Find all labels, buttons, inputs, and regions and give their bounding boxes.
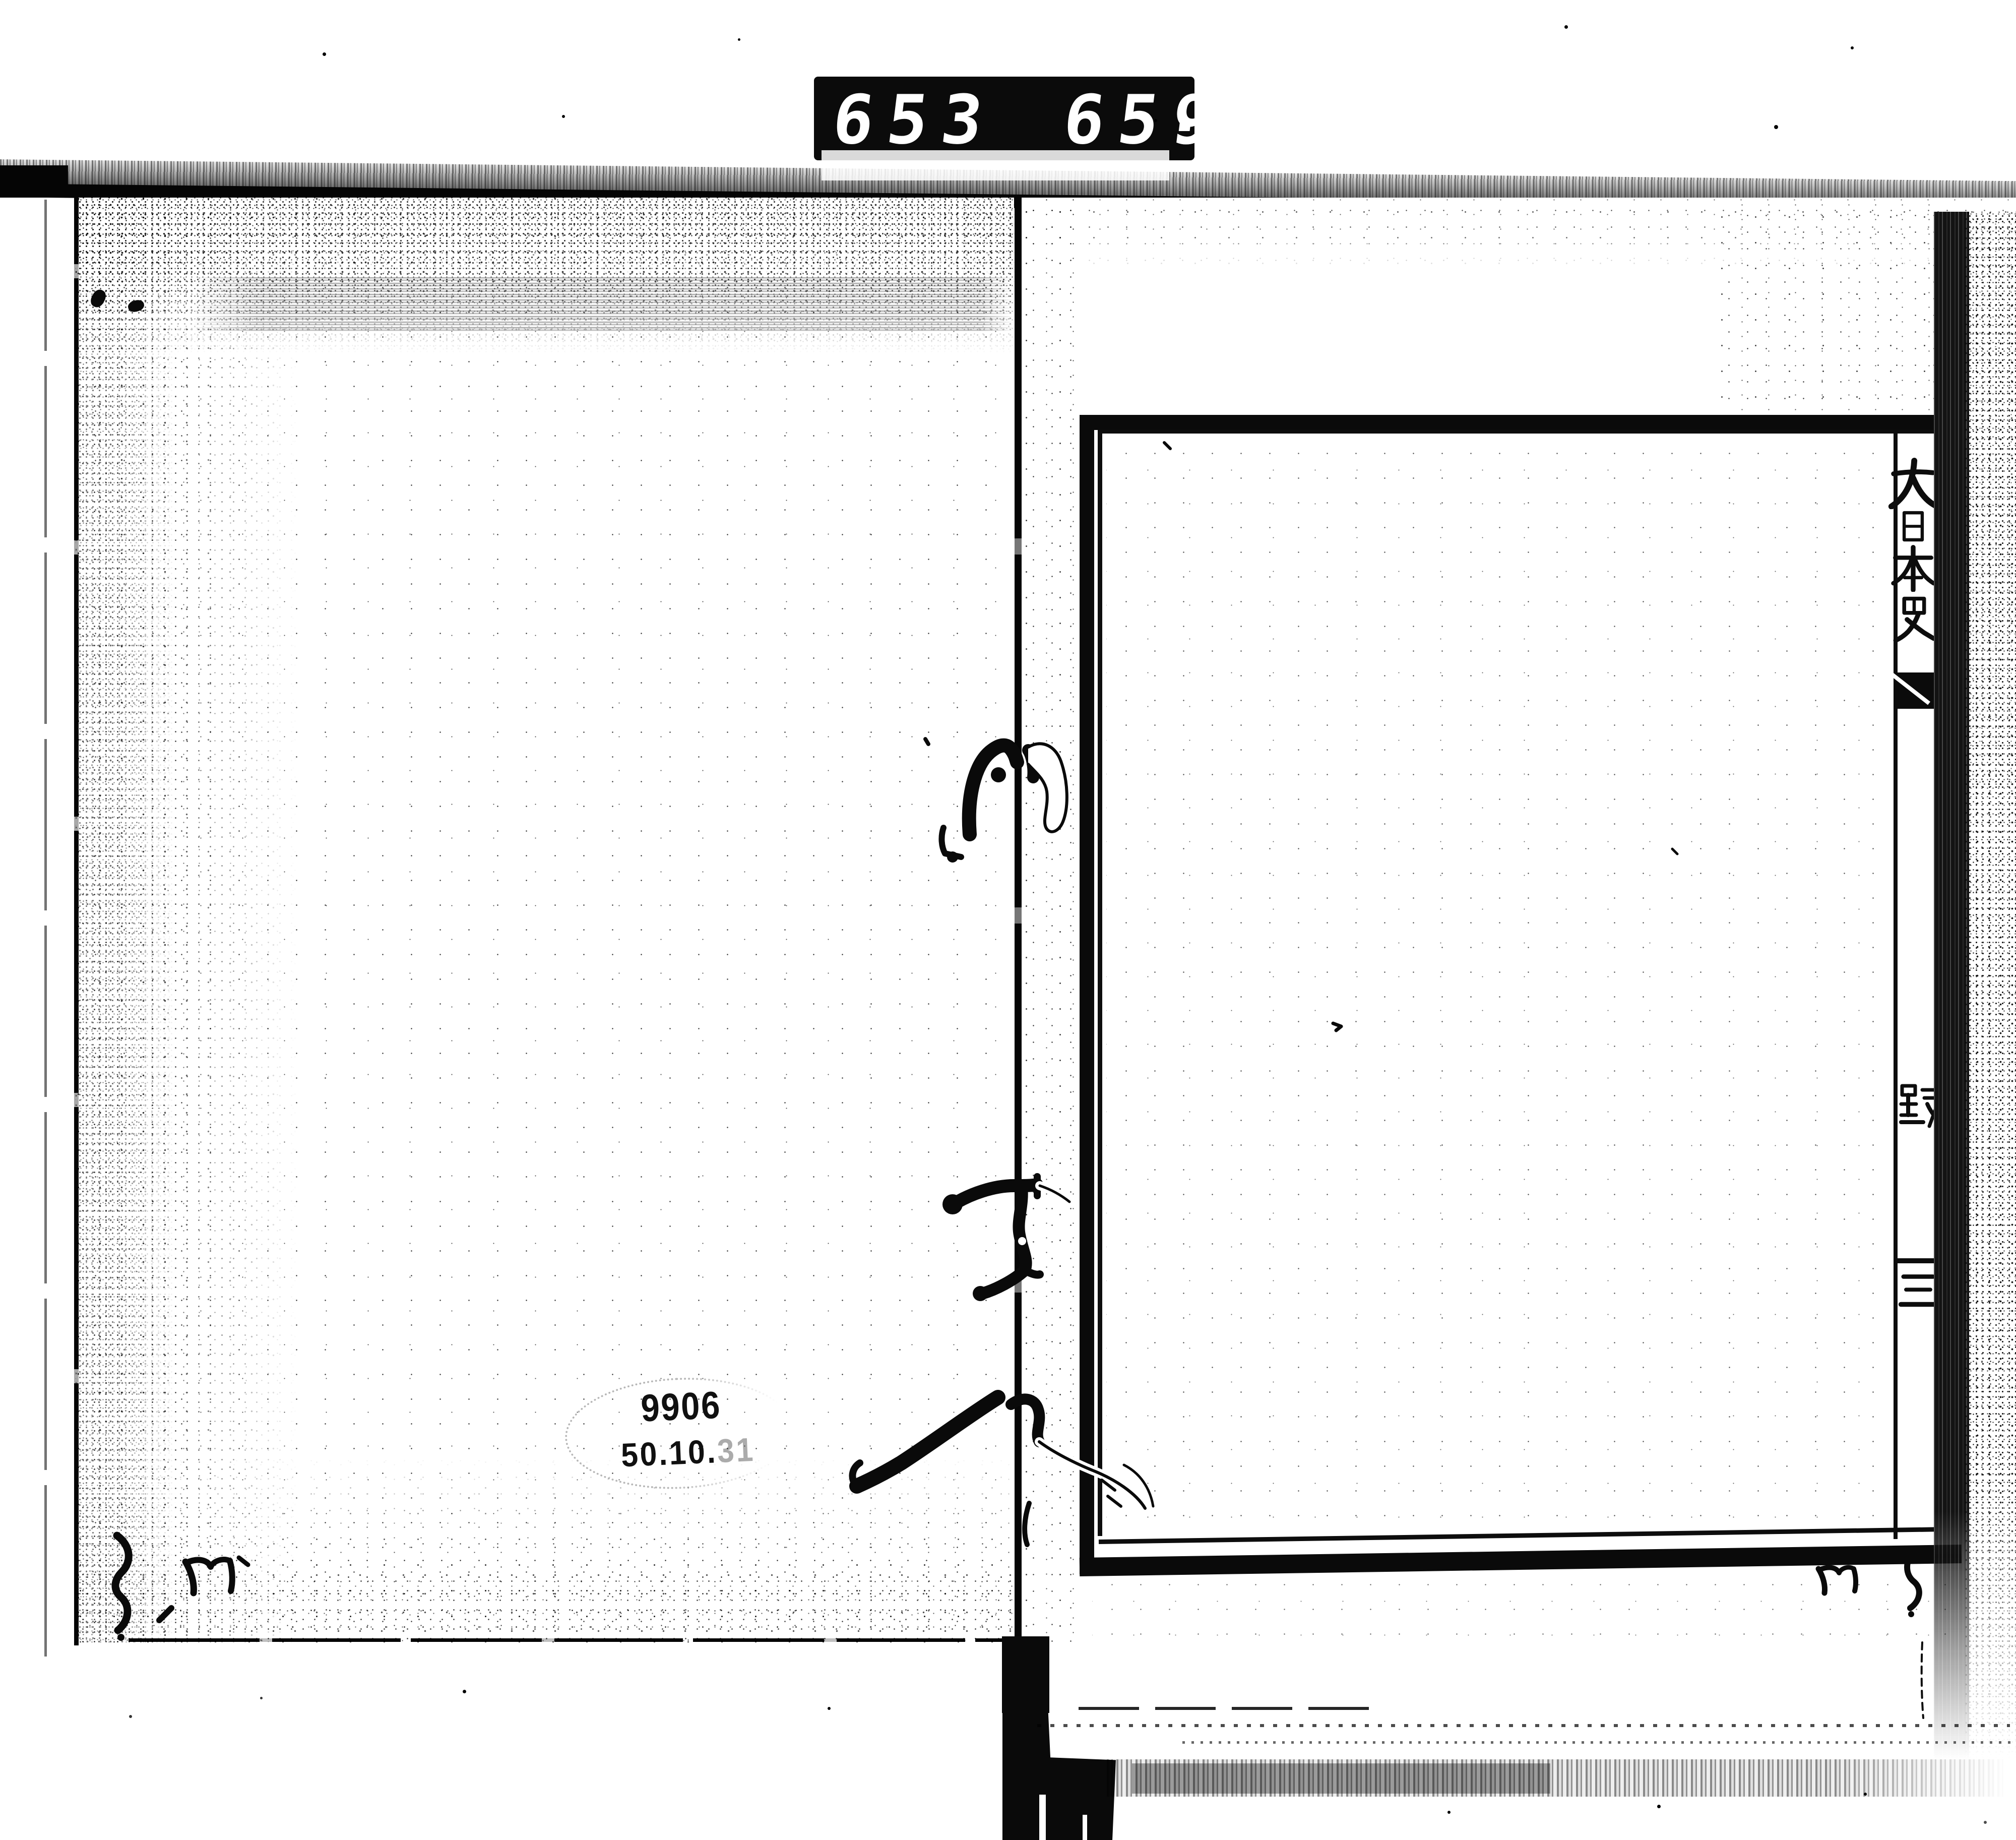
page-stack-grain-dark [1132, 1763, 1550, 1794]
title-char-hon: 本 [1887, 544, 1939, 592]
fore-edge-dark-band [1934, 212, 1969, 1759]
column-divider-rule [1894, 1258, 1936, 1263]
dust-dot [1154, 119, 1157, 122]
bottom-gutter-blob [999, 1709, 1116, 1840]
frame-inner-top [1098, 430, 1934, 434]
dust-dot [463, 1690, 466, 1693]
dust-dot [1564, 25, 1568, 29]
left-page-bottom-edge-line [129, 1638, 1016, 1642]
dust-dot [260, 1697, 263, 1699]
blob-white-slit [1039, 1795, 1046, 1840]
frame-outer-top [1080, 415, 1937, 430]
stamp-date: 50.10.31 [620, 1430, 756, 1475]
frame-inner-left [1098, 430, 1102, 1536]
title-char-shi: 史 [1888, 595, 1939, 642]
page-counter-display: 653 659 . [814, 77, 1194, 160]
dust-dot [1447, 1811, 1451, 1814]
left-page: 9906 50.10.31 [76, 198, 1014, 1642]
book-scan-page: 653 659 . 9906 50.10.31 [0, 0, 2016, 1840]
dust-dot [1984, 1821, 1987, 1824]
top-edge-notch [822, 150, 1169, 180]
fore-edge-speckle-band-upper [1966, 212, 2016, 791]
page-stack-edge-line [1079, 1707, 1371, 1710]
counter-left-value: 653 [828, 80, 1001, 160]
title-char-dai: 大 [1886, 454, 1940, 509]
right-page-topright-texture [1717, 203, 1934, 414]
right-page-gutter-texture [1022, 198, 1080, 1645]
center-fold-line [1015, 198, 1022, 1645]
dust-dot [828, 1707, 831, 1710]
counter-decimal-dot: . [1162, 68, 1226, 148]
frame-interior-speckle [1106, 438, 1890, 1531]
left-page-speckle [76, 198, 1014, 1642]
stamp-number: 9906 [640, 1383, 722, 1431]
library-stamp: 9906 50.10.31 [559, 1365, 807, 1504]
dust-dot [1774, 125, 1778, 129]
page-stack-edge-line [1037, 1724, 2010, 1727]
dust-dot [1851, 46, 1854, 49]
stamp-date-faint: 31 [716, 1431, 755, 1469]
dust-dot [1657, 1805, 1661, 1808]
title-char-nichi: 日 [1891, 510, 1935, 542]
dust-dot [323, 52, 326, 56]
bottom-gutter-blob-neck [1002, 1636, 1049, 1713]
dust-dot [1864, 1793, 1867, 1796]
page-stack-edge-line [1182, 1741, 2013, 1744]
stamp-date-main: 50.10. [620, 1432, 718, 1474]
frame-outer-left [1080, 415, 1094, 1574]
left-board-edge-line [44, 200, 47, 1657]
right-page-belowframe-speckle [1092, 1569, 1949, 1639]
dust-dot [129, 1715, 132, 1718]
blob-white-slit [1083, 1815, 1087, 1840]
top-edge-left-cap [0, 165, 68, 198]
dust-dot [738, 38, 740, 41]
dust-dot [562, 115, 565, 118]
